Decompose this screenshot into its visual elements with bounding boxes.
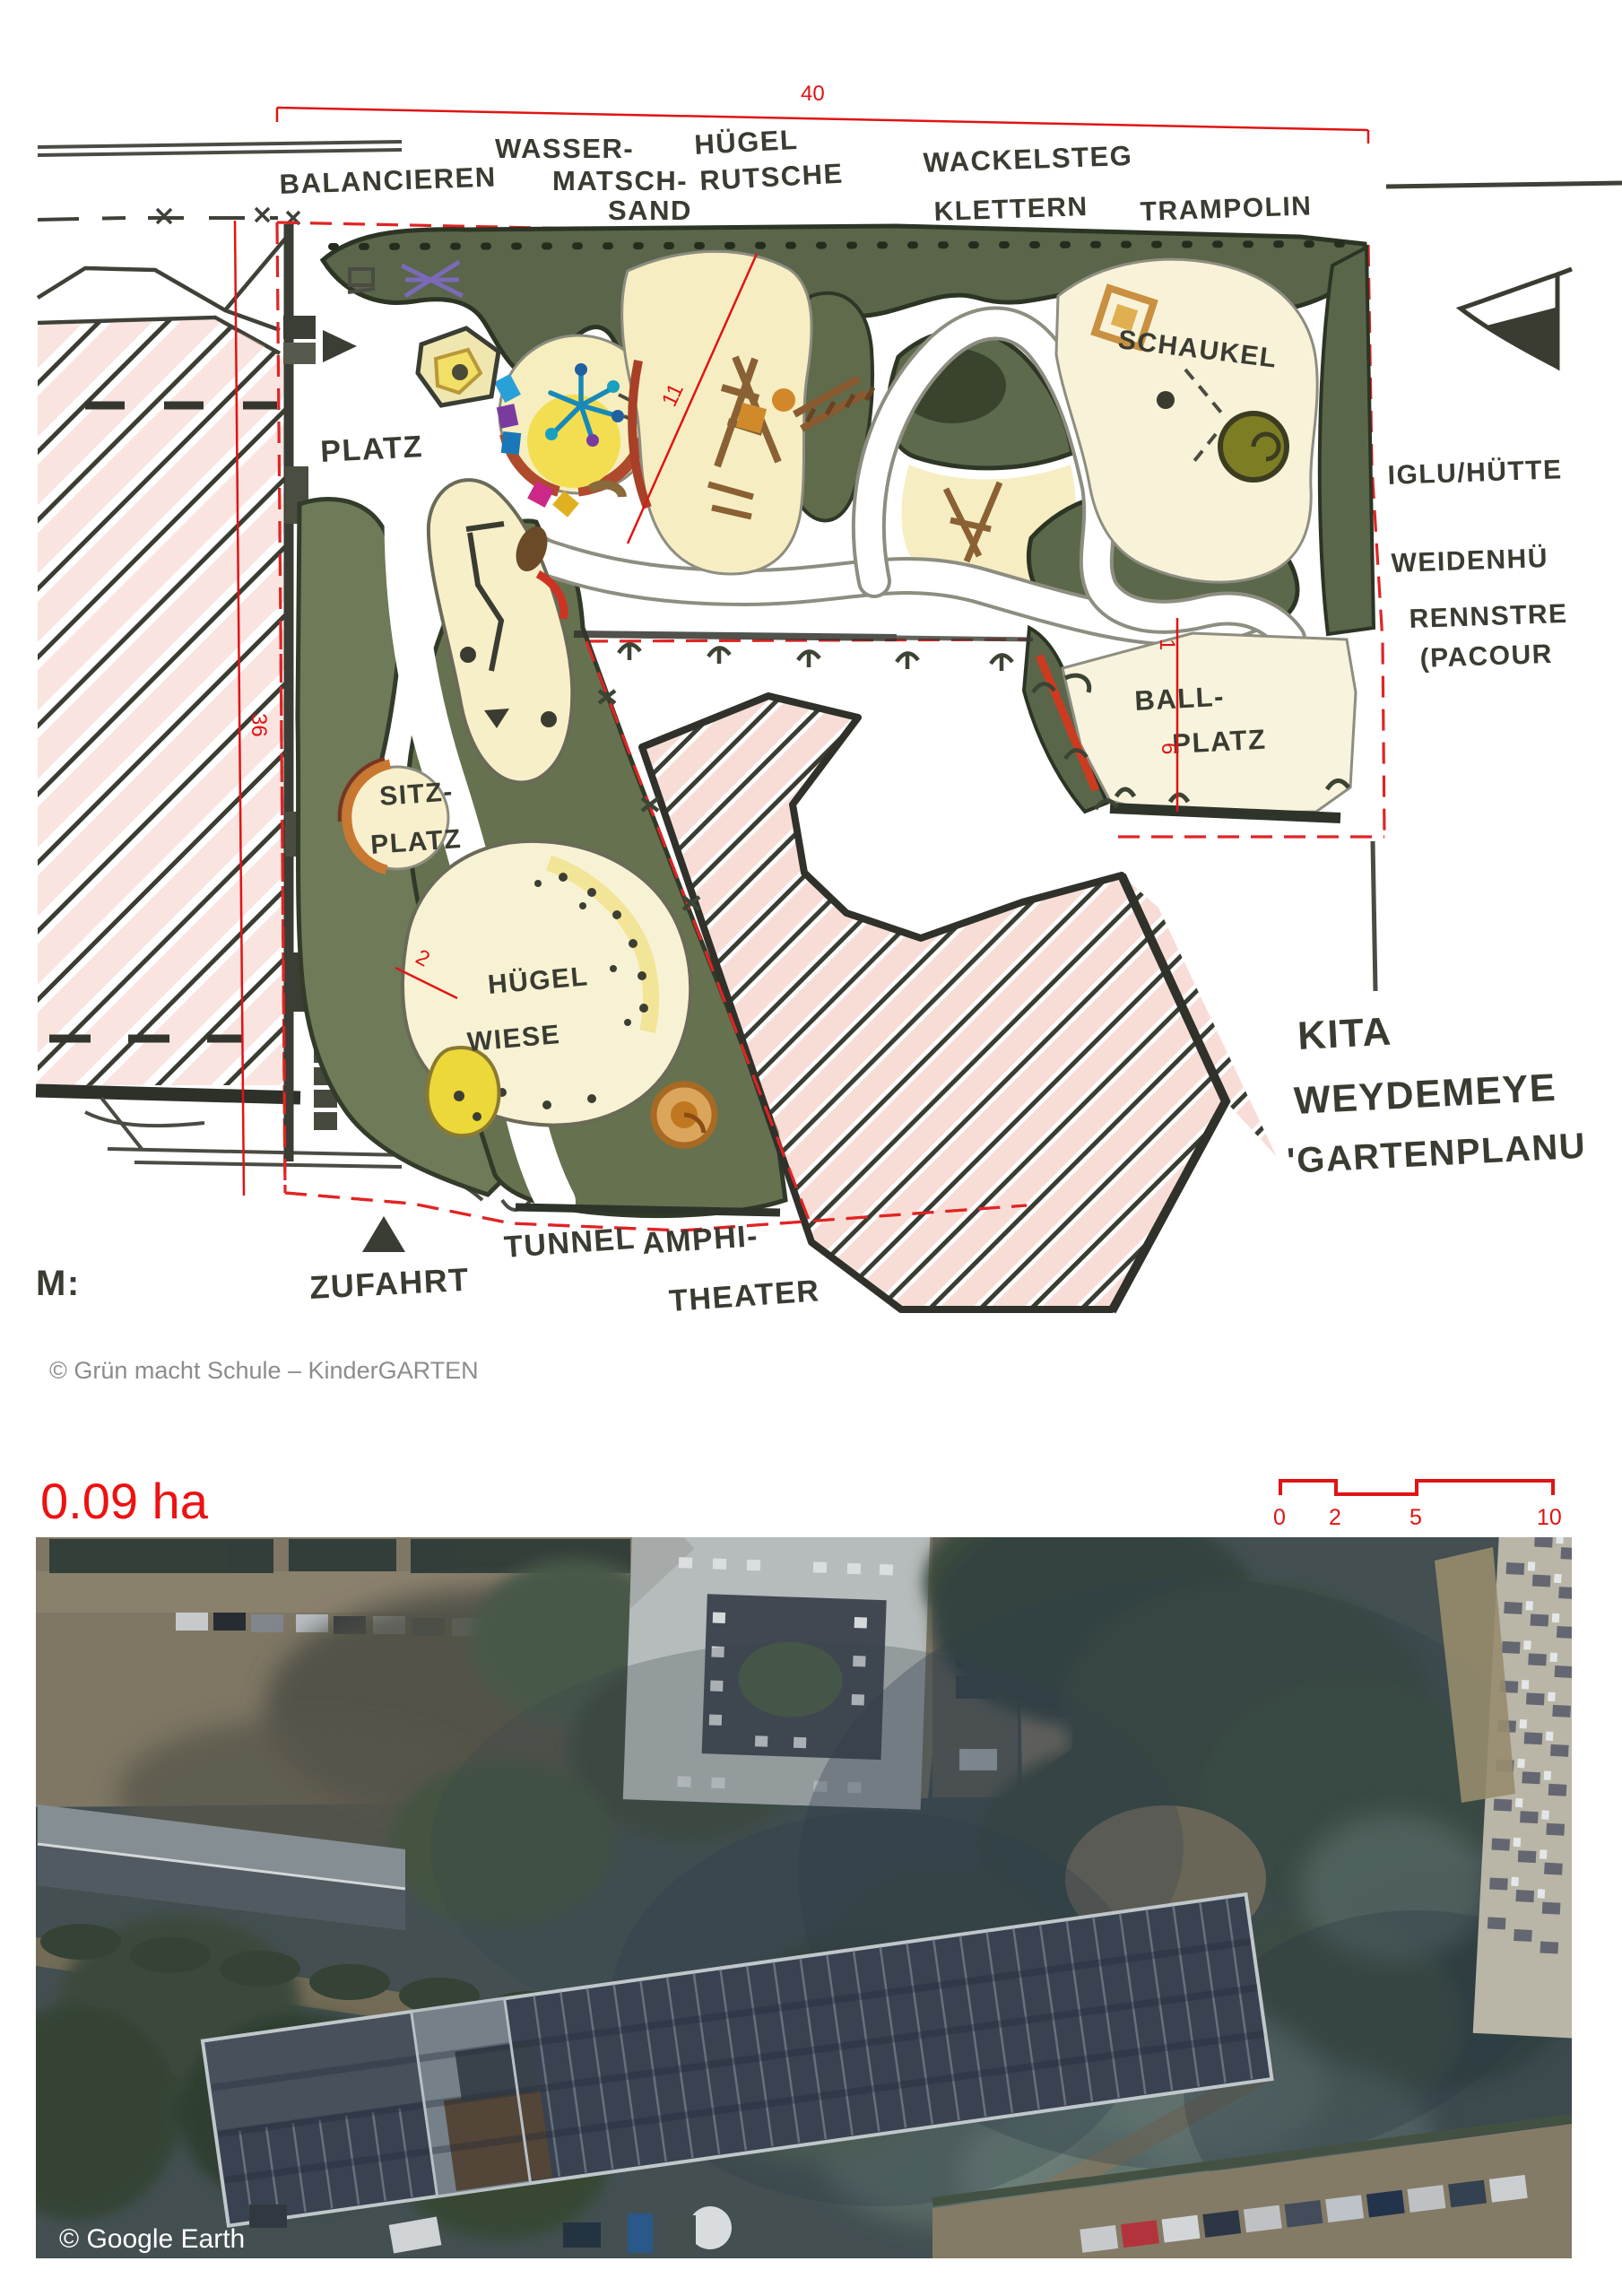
- svg-text:KITA: KITA: [1297, 1010, 1393, 1058]
- svg-text:36: 36: [247, 713, 271, 737]
- svg-text:2: 2: [1329, 1505, 1341, 1530]
- svg-text:10: 10: [1537, 1505, 1562, 1530]
- svg-text:WASSER-: WASSER-: [495, 133, 634, 164]
- svg-text:HÜGEL: HÜGEL: [694, 124, 800, 161]
- svg-text:(PACOUR: (PACOUR: [1419, 639, 1553, 674]
- svg-text:© Google Earth: © Google Earth: [59, 2224, 245, 2254]
- svg-text:SITZ-: SITZ-: [378, 777, 455, 812]
- svg-text:SAND: SAND: [608, 195, 692, 226]
- svg-text:1: 1: [1155, 639, 1179, 650]
- svg-text:PLATZ: PLATZ: [319, 430, 423, 469]
- svg-text:5: 5: [1409, 1505, 1422, 1530]
- svg-text:WEIDENHÜ: WEIDENHÜ: [1391, 544, 1548, 578]
- svg-text:© Grün macht Schule – KinderGA: © Grün macht Schule – KinderGARTEN: [49, 1357, 479, 1384]
- svg-text:MATSCH-: MATSCH-: [552, 165, 688, 196]
- svg-text:40: 40: [801, 82, 825, 106]
- svg-text:0.09 ha: 0.09 ha: [40, 1473, 209, 1529]
- svg-text:6: 6: [1157, 743, 1181, 754]
- svg-text:0: 0: [1273, 1505, 1286, 1530]
- svg-text:PLATZ: PLATZ: [1172, 724, 1268, 760]
- svg-text:TRAMPOLIN: TRAMPOLIN: [1140, 191, 1313, 227]
- svg-text:IGLU/HÜTTE: IGLU/HÜTTE: [1387, 455, 1563, 491]
- svg-text:KLETTERN: KLETTERN: [933, 192, 1089, 227]
- svg-text:M:: M:: [36, 1264, 81, 1303]
- svg-text:RENNSTRE: RENNSTRE: [1409, 599, 1568, 634]
- svg-text:BALL-: BALL-: [1134, 681, 1226, 717]
